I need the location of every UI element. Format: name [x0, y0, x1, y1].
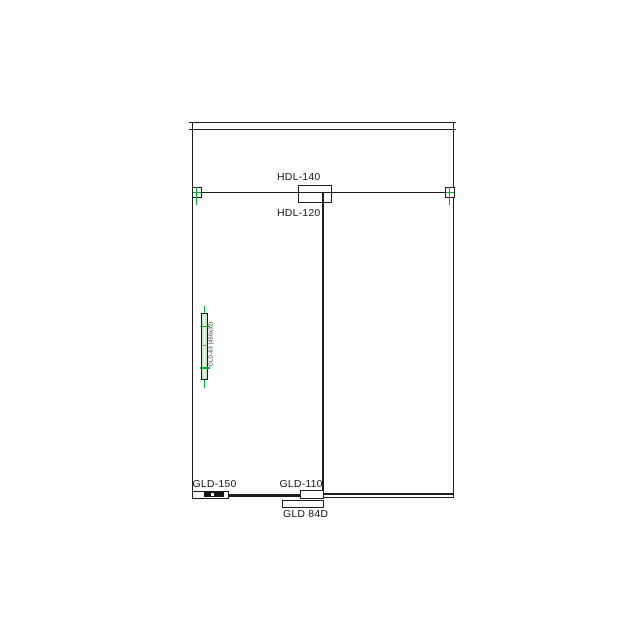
pull-handle-tick-bottom: [204, 380, 206, 388]
label-hdl140: HDL-140: [277, 172, 320, 183]
frame-line-left: [192, 123, 194, 498]
glass-door-elevation-drawing: HDL-140 HDL-120 GLD-63 (450x32) GLD-150 …: [0, 0, 640, 640]
label-gld84d: GLD 84D: [283, 509, 328, 520]
floor-closer-gld84d: [282, 500, 325, 508]
label-gld150: GLD-150: [193, 479, 237, 490]
pull-handle-label: GLD-63 (450x32): [208, 313, 216, 376]
frame-line-right: [453, 123, 455, 499]
bottom-patch-gld110: [300, 490, 325, 499]
fixing-marker-right-cross-vertical: [449, 187, 451, 205]
transom-patch-hdl140: [298, 185, 332, 203]
header-channel: [189, 122, 456, 130]
fixing-marker-left-cross-horizontal: [193, 192, 201, 194]
side-panel-bottom-line-lower: [323, 497, 454, 499]
fixing-marker-left-cross-vertical: [196, 187, 198, 205]
pull-handle-center-mark: [203, 345, 207, 347]
lock-patch-gld150-keyway: [211, 493, 214, 496]
lock-patch-gld150-insert: [204, 492, 224, 497]
door-edge-line: [322, 192, 324, 495]
label-gld110: GLD-110: [280, 479, 323, 490]
label-hdl120: HDL-120: [277, 208, 320, 219]
pull-handle-tick-top: [204, 306, 206, 314]
side-panel-bottom-line-upper: [323, 493, 454, 495]
fixing-marker-right-cross-horizontal: [446, 192, 454, 194]
